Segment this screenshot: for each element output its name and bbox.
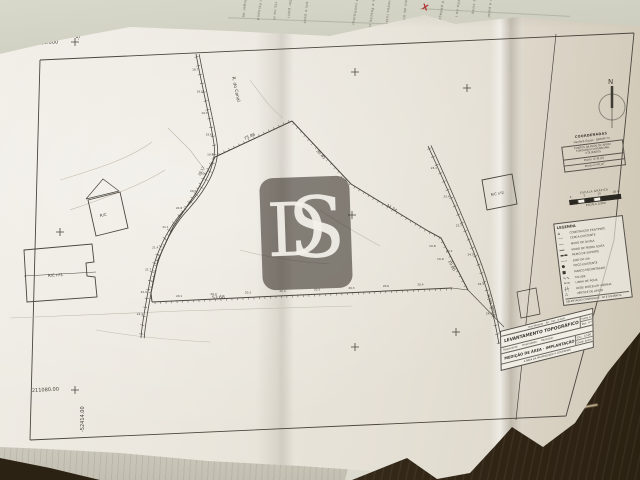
building-outline: [517, 288, 540, 318]
survey-tick: [146, 289, 150, 290]
survey-tick: [429, 232, 430, 234]
station-number: 20.2: [201, 171, 207, 175]
survey-tick: [410, 221, 411, 223]
legend-symbol-icon: △: [565, 292, 577, 297]
drawing-label: R/C: [99, 212, 107, 218]
station-number: 19.0: [197, 89, 203, 93]
survey-tick: [420, 227, 421, 229]
survey-tick: [191, 197, 193, 198]
station-number: 19.9: [207, 152, 213, 156]
station-number: 19.3: [201, 111, 207, 115]
survey-tick: [363, 192, 364, 194]
survey-tick: [188, 202, 190, 203]
survey-tick: [373, 198, 374, 200]
station-number: 24.0: [468, 253, 474, 257]
survey-tick: [377, 201, 378, 203]
survey-tick: [354, 186, 355, 188]
survey-tick: [311, 143, 313, 145]
survey-tick: [195, 194, 198, 196]
drawing-label: 75.86: [243, 131, 256, 141]
station-number: 19.6: [206, 133, 212, 137]
survey-tick: [145, 298, 149, 299]
drawing-label: 20.1: [446, 249, 453, 253]
survey-tick: [184, 206, 186, 207]
survey-tick: [315, 147, 317, 149]
station-number: 24.6: [486, 312, 492, 316]
station-number: 21.1: [162, 225, 168, 229]
station-number: 21.4: [152, 246, 158, 250]
legend-rows: ⌂CONSTRUÇÃO EXISTENTE╌╌CERCA EXISTENTE──…: [557, 223, 629, 297]
survey-tick: [334, 167, 336, 169]
survey-tick: [326, 159, 328, 161]
survey-tick: [307, 139, 309, 141]
survey-tick: [415, 224, 416, 226]
contour-line: [60, 142, 152, 180]
survey-tick: [338, 171, 340, 173]
drawing-label: R/C nº2: [490, 191, 504, 197]
contour-line: [96, 330, 210, 342]
watermark-letter-s: S: [286, 185, 346, 271]
drawing-label: 211080.00: [32, 387, 59, 394]
survey-tick: [368, 195, 369, 197]
survey-tick: [349, 183, 351, 185]
drawing-label: -52414.00: [80, 406, 86, 432]
survey-tick: [405, 218, 406, 220]
survey-sheet: 211180.000-52414.000211080.00-52414.00NR…: [0, 0, 640, 480]
survey-tick: [439, 237, 440, 239]
survey-tick: [292, 123, 294, 125]
boundary-line: [215, 121, 292, 157]
talude-line: [10, 306, 352, 318]
survey-tick: [330, 163, 332, 165]
station-number: 23.7: [456, 224, 462, 228]
survey-tick: [434, 235, 435, 237]
drawing-label: 19.9: [437, 257, 444, 261]
contour-line: [250, 80, 283, 118]
station-number: 20.4: [417, 283, 423, 287]
station-number: 22.0: [141, 290, 147, 294]
station-number: 20.3: [210, 292, 216, 296]
station-number: 22.3: [137, 312, 143, 316]
survey-tick: [148, 280, 152, 281]
station-number: 20.2: [245, 291, 251, 295]
drawing-label: R/C nº1: [48, 272, 64, 278]
survey-tick: [359, 189, 360, 191]
station-number: 23.1: [431, 166, 437, 170]
station-number: 20.8: [176, 206, 182, 210]
station-number: 18.7: [192, 68, 198, 72]
station-number: 23.4: [443, 195, 449, 199]
survey-tick: [300, 131, 302, 133]
drawing-label: 30.45: [315, 148, 327, 160]
survey-tick: [142, 316, 146, 317]
drawing-label: R. do Canal: [230, 76, 241, 102]
legend-box: LEGENDA ⌂CONSTRUÇÃO EXISTENTE╌╌CERCA EXI…: [553, 215, 633, 306]
drawing-label: N: [608, 78, 613, 86]
boundary-line: [151, 157, 215, 302]
watermark-logo: D S: [259, 175, 353, 290]
survey-tick: [424, 229, 425, 231]
station-number: 20.3: [348, 286, 354, 290]
station-number: 20.5: [190, 189, 196, 193]
survey-tick: [143, 307, 147, 308]
station-number: 24.3: [478, 282, 484, 286]
station-number: 20.1: [176, 294, 182, 298]
survey-tick: [382, 204, 383, 206]
station-number: 20.6: [383, 284, 389, 288]
drawing-label: 19.8: [429, 244, 436, 248]
survey-tick: [172, 222, 175, 224]
boundary-line: [152, 288, 452, 302]
station-number: 21.7: [145, 268, 151, 272]
stream-line: [168, 128, 205, 170]
survey-tick: [396, 212, 397, 214]
building-outline: [88, 192, 128, 236]
photo-of-topographic-plan: { "background": { "red_mark": "X", "top_…: [0, 0, 640, 480]
survey-tick: [304, 135, 306, 137]
survey-tick: [401, 215, 402, 217]
survey-tick: [140, 325, 144, 326]
coordinates-notes-box: COORDENADAS Hayford-Gauss · DATUM 73 PON…: [560, 129, 626, 172]
survey-tick: [296, 127, 298, 129]
drawing-label: 19.80: [447, 259, 457, 272]
